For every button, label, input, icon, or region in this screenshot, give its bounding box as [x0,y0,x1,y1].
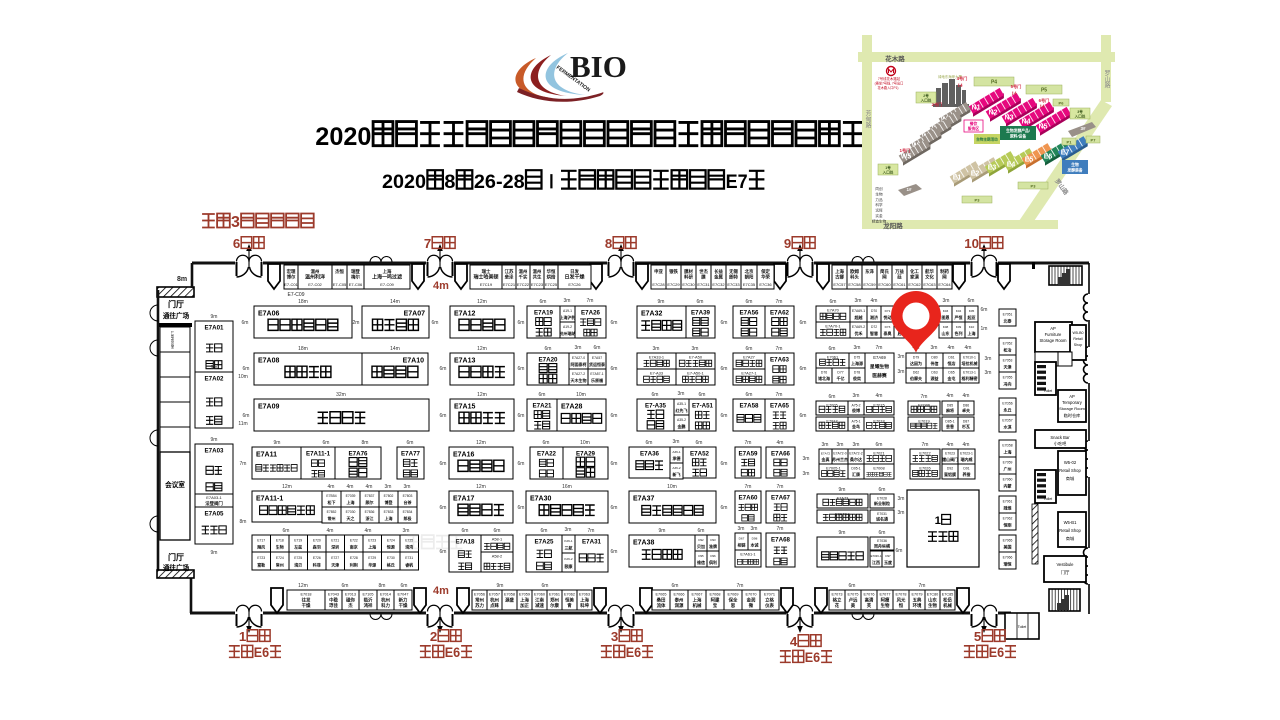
svg-text:E7A63: E7A63 [770,357,789,364]
svg-text:E7A77: E7A77 [401,451,420,458]
svg-text:同创: 同创 [875,186,883,191]
svg-text:11m: 11m [238,421,247,427]
svg-text:微: 微 [748,602,754,609]
svg-text:7m: 7m [587,298,594,304]
svg-text:乐原福: 乐原福 [591,377,603,383]
svg-text:松冶: 松冶 [1004,347,1012,353]
svg-text:培拉机械: 培拉机械 [962,360,978,366]
svg-text:门厅: 门厅 [168,299,184,309]
svg-text:7m: 7m [876,345,883,351]
svg-text:颐康: 颐康 [565,563,574,569]
svg-text:4m: 4m [366,484,373,490]
svg-text:E7056: E7056 [474,593,485,597]
svg-text:6m: 6m [611,505,618,511]
svg-text:D95: D95 [698,554,704,558]
svg-text:Storage Room: Storage Room [1040,338,1068,343]
svg-text:医赫赛: 医赫赛 [872,372,887,379]
svg-text:6m: 6m [518,320,525,326]
svg-text:Retail: Retail [1073,337,1082,341]
svg-text:养蚕: 养蚕 [962,471,971,477]
svg-text:Furniture: Furniture [1045,332,1062,337]
svg-text:4m: 4m [365,528,372,534]
svg-text:2m: 2m [353,320,360,326]
svg-text:E7A15: E7A15 [454,404,476,411]
svg-text:2020: 2020 [315,123,371,151]
svg-text:超越: 超越 [854,314,864,320]
svg-text:7m: 7m [777,526,784,532]
svg-text:E7018: E7018 [301,593,312,597]
svg-text:E719: E719 [294,539,302,543]
svg-text:天津: 天津 [1004,364,1012,370]
svg-text:E729: E729 [368,556,376,560]
svg-text:E7A07: E7A07 [404,311,426,318]
svg-text:3m: 3m [565,527,572,533]
svg-text:6m: 6m [242,320,249,326]
svg-text:E7C63: E7C63 [923,282,936,287]
svg-text:E723: E723 [368,539,376,543]
svg-text:E7A05: E7A05 [205,511,224,518]
svg-text:诚名通: 诚名通 [876,515,888,521]
svg-text:华荣: 华荣 [761,274,770,281]
svg-text:E7C36: E7C36 [759,282,772,287]
svg-text:E7A27-0: E7A27-0 [572,356,585,360]
svg-text:E7-C01: E7-C01 [284,282,298,287]
svg-text:E7030: E7030 [346,510,356,514]
svg-text:伯摩夫: 伯摩夫 [910,375,923,381]
svg-text:6m: 6m [243,366,250,372]
svg-text:E6: E6 [254,645,270,660]
svg-text:D61: D61 [948,356,954,360]
svg-text:颇尔: 颇尔 [366,499,374,505]
svg-text:悦动: 悦动 [884,314,892,320]
svg-text:E7078: E7078 [896,593,907,597]
svg-text:D65: D65 [948,371,954,375]
svg-text:E7013-1: E7013-1 [963,371,976,375]
svg-text:10m: 10m [580,440,590,446]
svg-text:E7A21: E7A21 [533,403,552,410]
svg-text:E7D58: E7D58 [1002,444,1012,448]
svg-text:E7013: E7013 [345,593,356,597]
svg-text:6m: 6m [829,394,836,400]
svg-text:14: 14 [1012,92,1018,97]
svg-text:小吃吧: 小吃吧 [1054,440,1067,447]
svg-text:优禾: 优禾 [855,330,864,336]
svg-text:上海源: 上海源 [851,360,863,366]
svg-text:P6: P6 [1059,100,1065,105]
svg-text:上海沪豹: 上海沪豹 [560,314,576,320]
svg-text:上海: 上海 [368,544,376,550]
svg-text:E7079: E7079 [912,593,923,597]
svg-text:会议室: 会议室 [165,480,185,489]
svg-text:6m: 6m [542,583,549,589]
svg-text:6m: 6m [697,299,704,305]
svg-text:E7-C05: E7-C05 [333,282,347,287]
svg-text:南京: 南京 [350,544,358,550]
svg-text:6m: 6m [876,442,883,448]
svg-text:E7A69: E7A69 [873,355,886,360]
svg-text:料研: 料研 [684,274,693,281]
svg-text:科菲: 科菲 [313,561,321,567]
svg-text:机械: 机械 [693,602,702,609]
svg-text:3#: 3# [1080,126,1086,131]
svg-text:临时仓库: 临时仓库 [1064,412,1081,419]
svg-text:E7A26: E7A26 [581,310,600,317]
svg-text:左兹: 左兹 [293,544,302,550]
svg-text:6m: 6m [698,528,705,534]
svg-text:D86: D86 [963,403,969,407]
svg-text:E7A38: E7A38 [633,540,655,547]
svg-text:E7A30: E7A30 [530,496,552,503]
svg-text:3m: 3m [898,510,905,516]
svg-text:E731: E731 [405,556,413,560]
svg-text:永丘: 永丘 [1003,407,1012,413]
svg-text:芳甸路: 芳甸路 [864,109,871,129]
svg-text:瑞内威: 瑞内威 [961,456,973,462]
svg-text:E7B54: E7B54 [326,494,336,498]
svg-text:D72: D72 [871,325,877,329]
svg-text:E7052: E7052 [1003,342,1013,346]
svg-text:10m: 10m [238,374,248,380]
svg-text:E7A65: E7A65 [770,403,789,410]
svg-text:通往广场: 通往广场 [163,563,190,572]
svg-text:利荆: 利荆 [349,561,358,567]
svg-text:9m: 9m [658,299,665,305]
svg-text:1号: 1号 [885,165,891,170]
svg-text:14: 14 [1040,105,1046,110]
svg-text:26-28: 26-28 [474,171,525,193]
svg-text:贝加: 贝加 [697,543,705,549]
svg-text:7m: 7m [922,442,929,448]
svg-text:E7059: E7059 [519,593,530,597]
svg-text:E7060: E7060 [1003,478,1013,482]
svg-text:1: 1 [239,629,247,644]
svg-text:14: 14 [958,84,964,89]
svg-text:E7071: E7071 [764,593,775,597]
svg-text:6m: 6m [543,440,550,446]
svg-text:4m: 4m [328,484,335,490]
svg-text:E7A03: E7A03 [205,448,224,455]
svg-text:力品: 力品 [875,197,883,202]
svg-text:6m: 6m [829,346,836,352]
svg-text:P3: P3 [975,197,981,202]
svg-text:6m: 6m [440,366,447,372]
svg-text:E7802: E7802 [384,494,394,498]
svg-text:E2: E2 [971,171,980,178]
svg-text:格氏: 格氏 [387,561,395,567]
svg-text:门厅: 门厅 [1061,569,1070,576]
svg-text:7m: 7m [776,392,783,398]
svg-text:Snack Bar: Snack Bar [1050,435,1070,440]
svg-text:4m: 4m [947,442,954,448]
svg-text:A75-2: A75-2 [851,403,860,407]
svg-text:E7-C06: E7-C06 [349,282,363,287]
svg-text:P3: P3 [1031,183,1037,188]
svg-text:E717: E717 [257,539,265,543]
svg-text:3m: 3m [403,528,410,534]
svg-text:E7C28: E7C28 [652,282,665,287]
svg-text:Toilet: Toilet [1044,497,1052,501]
svg-text:郎极: 郎极 [404,515,412,521]
svg-text:4m: 4m [876,393,883,399]
svg-text:6m: 6m [539,392,546,398]
svg-text:D63: D63 [931,371,937,375]
svg-text:8: 8 [444,171,455,193]
svg-text:12m: 12m [476,440,486,446]
svg-text:9m: 9m [659,528,666,534]
svg-text:1m: 1m [981,326,988,332]
svg-text:千亿: 千亿 [837,375,845,381]
svg-text:12m: 12m [477,346,487,352]
svg-text:杉瓦: 杉瓦 [962,423,970,429]
svg-text:1: 1 [935,515,941,527]
svg-text:8m: 8m [362,440,369,446]
svg-text:6m: 6m [721,320,728,326]
svg-text:4m: 4m [777,440,784,446]
svg-text:烘焙: 烘焙 [547,274,556,281]
svg-text:E7061: E7061 [1003,500,1013,504]
svg-text:4m: 4m [347,484,354,490]
svg-text:格利精密: 格利精密 [962,375,978,381]
svg-text:博尔: 博尔 [287,274,296,281]
svg-text:上海: 上海 [968,330,976,336]
svg-text:仪表: 仪表 [764,602,774,609]
svg-text:3m: 3m [673,439,680,445]
svg-text:商城: 商城 [1066,535,1075,542]
svg-text:6m: 6m [746,299,753,305]
svg-text:14m: 14m [390,346,400,352]
svg-text:P1: P1 [1067,139,1073,144]
svg-text:E7A20: E7A20 [539,357,558,364]
svg-text:E7834: E7834 [403,510,413,514]
svg-text:深圳: 深圳 [331,544,339,550]
svg-text:6m: 6m [342,583,349,589]
svg-text:E7C26: E7C26 [568,282,581,287]
svg-text:E7A70-1: E7A70-1 [825,324,840,329]
svg-text:E7C22: E7C22 [517,282,530,287]
svg-text:严恒: 严恒 [954,314,963,320]
svg-text:5: 5 [974,629,982,644]
svg-text:E7A72: E7A72 [821,452,831,456]
svg-text:Retail Shop: Retail Shop [1059,528,1081,533]
svg-text:减速: 减速 [535,602,544,609]
svg-text:D85-1: D85-1 [945,419,954,423]
svg-text:内蒙: 内蒙 [1004,483,1012,489]
svg-text:7m: 7m [745,440,752,446]
svg-text:E7036-1: E7036-1 [871,554,882,558]
svg-text:D92: D92 [698,538,704,542]
svg-text:E7C19: E7C19 [480,282,493,287]
svg-text:6m: 6m [721,461,728,467]
svg-text:E724: E724 [276,556,284,560]
svg-text:(乘坐7号线, 7号出口: (乘坐7号线, 7号出口 [875,81,904,86]
svg-text:6m: 6m [721,505,728,511]
svg-text:三航: 三航 [565,544,573,550]
svg-text:杭州瑞纳: 杭州瑞纳 [560,330,576,336]
svg-text:9m: 9m [839,487,846,493]
svg-text:E7053: E7053 [1003,359,1013,363]
svg-text:银铁: 银铁 [669,268,678,275]
svg-text:松下: 松下 [328,499,336,505]
svg-text:D91: D91 [963,467,969,471]
svg-text:金鸟: 金鸟 [851,423,860,429]
svg-text:3m: 3m [803,471,810,477]
svg-text:E7023: E7023 [945,452,955,456]
svg-text:宝: 宝 [713,602,718,609]
svg-text:4m: 4m [947,393,954,399]
svg-text:准牌: 准牌 [709,543,717,549]
svg-text:E7A11-1: E7A11-1 [306,451,331,458]
svg-text:苏州兰杰: 苏州兰杰 [832,456,848,462]
svg-text:膜: 膜 [701,274,706,281]
svg-text:E7C29: E7C29 [667,282,680,287]
svg-text:Vestibule: Vestibule [1057,562,1075,567]
svg-text:7m: 7m [777,484,784,490]
svg-text:E7A32: E7A32 [641,311,663,318]
svg-text:科坤: 科坤 [580,602,589,609]
svg-text:日发干燥: 日发干燥 [564,274,585,281]
svg-text:E7C80: E7C80 [927,593,939,597]
svg-text:6m: 6m [440,461,447,467]
svg-text:D93: D93 [710,538,716,542]
svg-text:E7A36: E7A36 [640,451,659,458]
svg-text:N3: N3 [1005,115,1014,122]
svg-text:E7C33: E7C33 [727,282,740,287]
svg-text:A35-2: A35-2 [677,418,686,422]
svg-text:干燥: 干燥 [399,602,408,609]
svg-text:A36-2: A36-2 [672,466,681,470]
svg-text:1#: 1# [906,187,912,192]
svg-text:E7D57: E7D57 [1002,419,1012,423]
svg-text:A19-1: A19-1 [563,309,572,313]
svg-text:恒刚: 恒刚 [1004,522,1012,528]
svg-text:E7A37: E7A37 [633,496,655,503]
svg-text:E718: E718 [276,539,284,543]
svg-text:6m: 6m [440,549,447,555]
svg-text:E7803: E7803 [403,494,413,498]
svg-text:Toilet: Toilet [1044,389,1052,393]
svg-text:6m: 6m [611,366,618,372]
svg-text:6m: 6m [746,392,753,398]
svg-text:伟信: 伟信 [931,360,939,366]
svg-text:E7C58: E7C58 [848,282,861,287]
svg-text:6m: 6m [611,549,618,555]
svg-text:9m: 9m [839,530,846,536]
svg-text:E7A69-2: E7A69-2 [852,325,865,329]
svg-text:恒店: 恒店 [948,360,956,366]
svg-text:6m: 6m [545,346,552,352]
svg-text:A58-2: A58-2 [492,554,502,559]
svg-text:7m: 7m [919,583,926,589]
svg-text:5号门: 5号门 [1011,83,1022,90]
svg-text:3m: 3m [678,391,685,397]
svg-text:E7073: E7073 [832,593,843,597]
svg-text:12m: 12m [298,583,308,589]
svg-text:E7C25: E7C25 [545,282,558,287]
svg-text:E7058: E7058 [504,593,515,597]
svg-text:E7A12: E7A12 [454,311,476,318]
svg-text:9m: 9m [211,550,218,556]
svg-text:E7A25: E7A25 [535,539,554,546]
svg-text:生物: 生物 [1071,162,1079,167]
svg-text:6m: 6m [283,528,290,534]
svg-text:E7A33-1: E7A33-1 [649,355,664,360]
svg-text:共生: 共生 [533,274,542,281]
svg-text:7: 7 [424,236,431,251]
svg-text:6m: 6m [440,413,447,419]
svg-text:D78: D78 [854,371,860,375]
svg-text:千实: 千实 [519,274,528,281]
svg-text:3m: 3m [738,526,745,532]
svg-text:E7A17: E7A17 [453,496,475,503]
svg-text:服务区: 服务区 [968,126,980,131]
svg-text:E7A19: E7A19 [534,310,553,317]
svg-text:网: 网 [942,274,947,281]
svg-text:E7A02: E7A02 [205,376,224,383]
svg-text:罗山路: 罗山路 [1103,70,1110,89]
svg-text:9m: 9m [211,314,218,320]
svg-text:E7005-1: E7005-1 [826,466,841,471]
svg-text:E7-A51: E7-A51 [692,403,714,410]
svg-text:E7055: E7055 [1003,376,1013,380]
svg-text:6m: 6m [432,320,439,326]
svg-text:E720: E720 [313,539,321,543]
svg-text:D71: D71 [885,309,891,313]
svg-text:D73: D73 [885,325,891,329]
svg-text:E727: E727 [331,556,339,560]
svg-text:P7: P7 [1091,137,1097,142]
svg-text:E7A68: E7A68 [771,537,790,544]
svg-text:6m: 6m [800,366,807,372]
svg-text:E3: E3 [988,165,997,172]
svg-text:K03: K03 [943,309,949,313]
svg-text:E7A58: E7A58 [740,403,759,410]
svg-text:E7-C09: E7-C09 [380,282,394,287]
svg-text:阿囡泰柯: 阿囡泰柯 [571,361,587,367]
svg-text:D96: D96 [710,554,716,558]
svg-text:智慧: 智慧 [870,330,878,336]
svg-text:4: 4 [790,634,798,649]
svg-text:相链: 相链 [738,542,747,548]
svg-text:俊博: 俊博 [852,407,860,413]
svg-text:朝阳: 朝阳 [745,274,754,281]
svg-text:E7057: E7057 [489,593,500,597]
svg-text:9m: 9m [211,437,218,443]
svg-text:D76: D76 [821,371,827,375]
svg-text:3m: 3m [822,442,829,448]
svg-text:E7837: E7837 [365,494,375,498]
svg-text:E7C32: E7C32 [712,282,725,287]
svg-text:图恩: 图恩 [942,314,950,320]
svg-text:森羽: 森羽 [313,544,321,550]
svg-text:通往广场: 通往广场 [163,311,190,320]
svg-text:E7A60: E7A60 [739,495,758,502]
svg-text:Retail Shop: Retail Shop [1059,468,1081,473]
svg-text:W5: W5 [901,154,912,161]
svg-text:美国: 美国 [1004,544,1012,550]
svg-text:3m: 3m [853,442,860,448]
svg-text:睿帆: 睿帆 [405,561,413,567]
svg-text:6m: 6m [879,530,886,536]
svg-text:3m: 3m [575,345,582,351]
svg-text:E7C21: E7C21 [503,282,516,287]
svg-text:瑞恒: 瑞恒 [1004,561,1012,567]
svg-text:东泽: 东泽 [865,268,874,275]
svg-text:常州: 常州 [276,561,284,567]
svg-text:6m: 6m [646,440,653,446]
svg-text:E7A03-1: E7A03-1 [206,495,222,500]
svg-text:E6: E6 [626,645,642,660]
svg-text:6m: 6m [800,320,807,326]
